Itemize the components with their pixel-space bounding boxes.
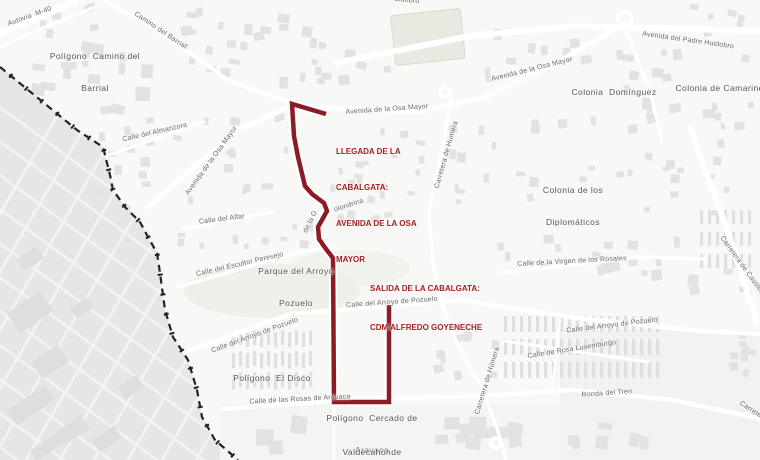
area-label-line: Diplomáticos [543,217,603,228]
park-areas [184,8,760,460]
map-canvas[interactable]: Autovía M-40 Camino del Barrial Calle de… [0,0,760,460]
area-label-line: Barrial [50,83,140,94]
area-label-colonia-camarines: Colonia de Camarines [675,83,760,94]
area-label-line: Polígono Cercado de [326,413,417,424]
llegada-line-1: LLEGADA DE LA [336,146,417,158]
area-label-line: Parque del Arroyo [258,266,334,277]
area-label-line: Pozuelo [258,298,334,309]
llegada-line-2: CABALGATA: [336,182,417,194]
area-label-line: Polígono Camino del [50,51,140,62]
salida-line-2: CDM ALFREDO GOYENECHE [370,321,482,334]
llegada-line-3: AVENIDA DE LA OSA [336,218,417,230]
area-label-colonia-dominguez: Colonia Domínguez [571,87,656,98]
salida-line-1: SALIDA DE LA CABALGATA: [370,282,482,295]
area-label-poligono-el-disco: Polígono El Disco [233,373,311,384]
area-label-colonia-diplomaticos: Colonia de los Diplomáticos [543,164,603,248]
area-label-valdecahonde: Valdecahonde [342,447,401,458]
area-label-parque-arroyo-pozuelo: Parque del Arroyo Pozuelo [258,245,334,329]
area-label-line: Colonia de los [543,185,603,196]
area-label-poligono-camino-barrial: Polígono Camino del Barrial [50,30,140,114]
salida-annotation: SALIDA DE LA CABALGATA: CDM ALFREDO GOYE… [370,256,482,360]
